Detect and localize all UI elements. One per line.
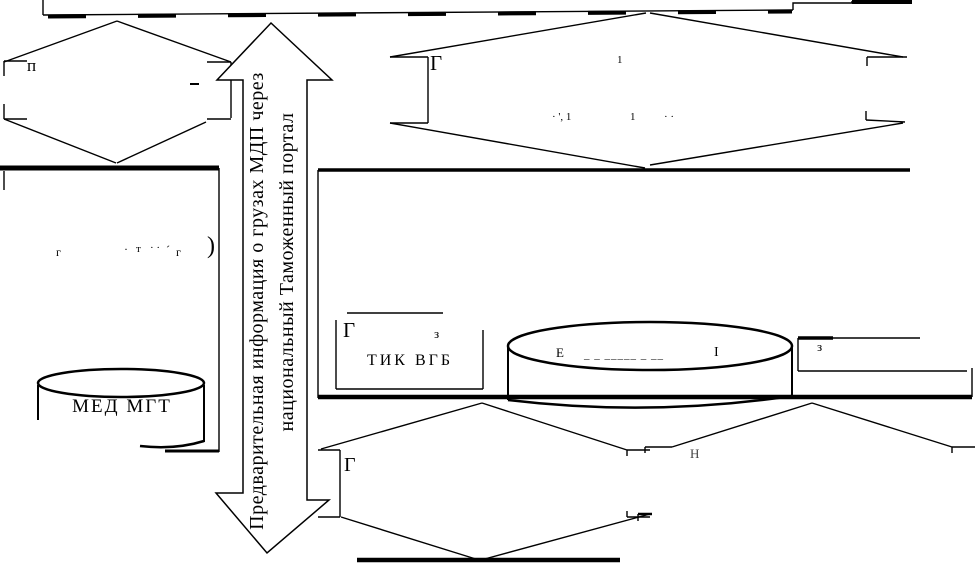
inner-rect-corner-label: Г	[343, 320, 355, 341]
top-right-diamond-fragment: · ', 1	[552, 112, 571, 123]
side-rect-label: з	[817, 340, 822, 353]
left-rect-fragment: · ·	[150, 243, 160, 254]
left-rect-fragment: ·	[124, 243, 128, 255]
diagram-linework	[0, 0, 975, 564]
inner-rect-side-label: з	[434, 327, 439, 340]
left-rect-fragment: г	[56, 246, 61, 258]
top-right-diamond-fragment: · ·	[664, 112, 674, 123]
main-cylinder-fragment: І	[714, 346, 719, 360]
top-right-diamond-fragment: 1	[630, 112, 636, 123]
bottom-center-diamond-shape	[318, 403, 650, 560]
top-right-diamond-label: Г	[430, 53, 442, 74]
top-strip-shape	[43, 0, 912, 17]
arrow-label-line1: Предварительная информация о грузах МДП …	[246, 51, 268, 551]
diagram-canvas: Предварительная информация о грузах МДП …	[0, 0, 975, 564]
bottom-right-diamond-label: Н	[690, 447, 699, 460]
bottom-right-diamond-shape	[638, 403, 975, 521]
left-rect-fragment: )	[207, 234, 215, 258]
inner-rect-shape	[336, 313, 483, 389]
main-cylinder-fragment: _ _ _____ _ __	[584, 350, 664, 361]
main-cylinder-fragment: Е	[556, 346, 564, 359]
left-diamond-shape	[4, 21, 231, 163]
top-right-diamond-fragment: 1	[617, 55, 623, 66]
left-rect-fragment: ´	[166, 244, 170, 256]
inner-rect-label: ТИК ВГБ	[360, 352, 460, 370]
arrow-label-line2: национальный Таможенный портал	[276, 102, 298, 442]
side-rect-shape	[798, 338, 967, 371]
top-right-diamond-shape	[390, 13, 907, 168]
bottom-center-diamond-label: Г	[344, 455, 356, 475]
left-rect-fragment: т	[136, 244, 141, 255]
double-arrow-shape	[216, 23, 332, 553]
left-diamond-label: п	[27, 57, 36, 74]
left-cylinder-label: МЕД МГТ	[62, 396, 182, 418]
left-rect-fragment: г	[176, 246, 181, 258]
